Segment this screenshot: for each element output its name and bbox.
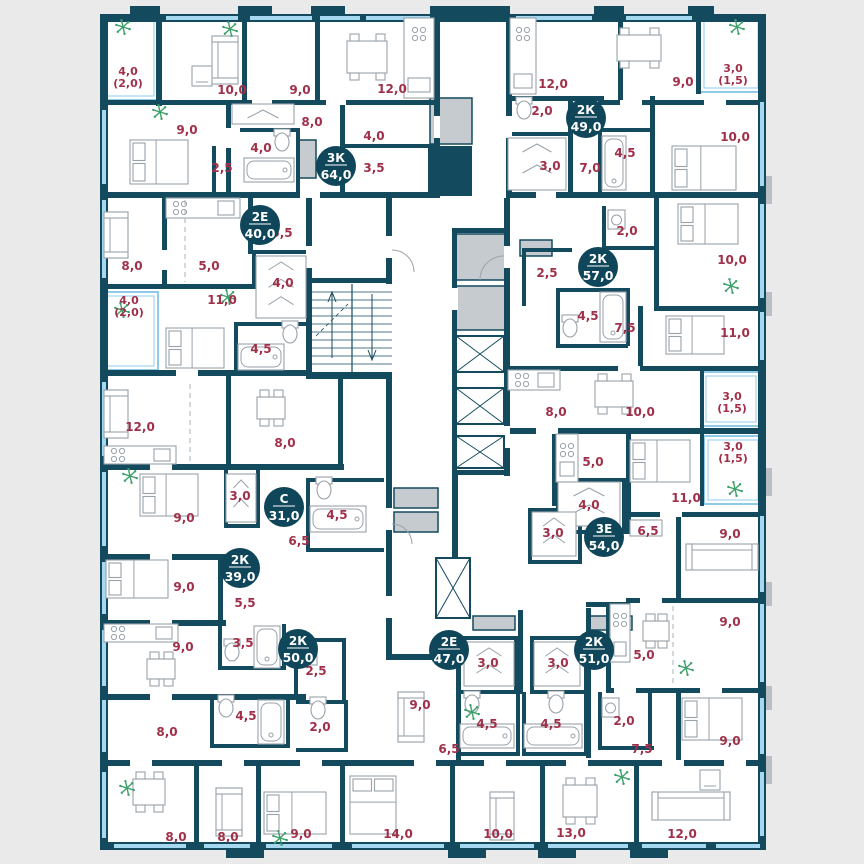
room-area-label: 8,0 — [301, 115, 322, 129]
unit-badge[interactable]: 2К39,0 — [220, 548, 260, 588]
floor-plan: 10,09,012,012,09,09,08,04,04,02,53,52,03… — [0, 0, 864, 864]
room-area-label: 9,0 — [719, 734, 740, 748]
room-area-label: 4,0 — [578, 498, 599, 512]
room-area-label: 4,0 — [250, 141, 271, 155]
room-area-label: 12,0 — [538, 77, 568, 91]
room-area-label: 3,5 — [363, 161, 384, 175]
dining-table-icon — [563, 778, 597, 824]
unit-area-label: 40,0 — [245, 226, 276, 241]
room-area-label: 4,5 — [476, 717, 497, 731]
unit-area-label: 50,0 — [283, 650, 314, 665]
unit-type-label: 2К — [577, 103, 595, 117]
room-area-label: 4,0 — [363, 129, 384, 143]
bathtub-icon — [244, 158, 294, 182]
bed-icon — [140, 474, 198, 516]
room-area-label: 4,5 — [614, 146, 635, 160]
room-area-label: 4,5 — [250, 342, 271, 356]
bed-icon — [666, 316, 724, 354]
room-area-label: 3,0 — [539, 159, 560, 173]
room-area-label: 7,0 — [579, 161, 600, 175]
room-area-label: 2,0 — [616, 224, 637, 238]
bed-icon — [130, 140, 188, 184]
room-area-label: 3,0 — [542, 526, 563, 540]
room-area-label: 2,0 — [531, 104, 552, 118]
balcony-inner-area-label: (2,0) — [113, 77, 143, 90]
unit-area-label: 54,0 — [589, 538, 620, 553]
room-area-label: 4,5 — [235, 709, 256, 723]
toilet-icon — [274, 129, 290, 151]
room-area-label: 14,0 — [383, 827, 413, 841]
sofa-icon — [104, 212, 128, 258]
kitchen-counter-icon — [556, 434, 578, 482]
sofa-icon — [686, 544, 758, 570]
toilet-icon — [310, 697, 326, 719]
bed-icon — [672, 146, 736, 190]
unit-badge[interactable]: 3Е54,0 — [584, 517, 624, 557]
room-area-label: 9,0 — [173, 511, 194, 525]
toilet-icon — [562, 315, 578, 337]
toilet-icon — [282, 321, 298, 343]
unit-type-label: 3К — [327, 151, 345, 165]
room-area-label: 10,0 — [717, 253, 747, 267]
unit-badge[interactable]: 3К64,0 — [316, 146, 356, 186]
room-area-label: 4,5 — [540, 717, 561, 731]
room-area-label: 11,0 — [207, 293, 237, 307]
room-area-label: 8,0 — [545, 405, 566, 419]
room-area-label: 8,0 — [217, 830, 238, 844]
room-area-label: 9,0 — [172, 640, 193, 654]
sofa-icon — [212, 36, 238, 84]
bed-icon — [166, 328, 224, 368]
toilet-icon — [316, 477, 332, 499]
room-area-label: 10,0 — [217, 83, 247, 97]
unit-type-label: 2К — [589, 252, 607, 266]
room-area-label: 12,0 — [667, 827, 697, 841]
room-area-label: 4,5 — [577, 309, 598, 323]
balcony-inner-area-label: (2,0) — [114, 306, 144, 319]
room-area-label: 9,0 — [672, 75, 693, 89]
kitchen-counter-icon — [166, 198, 240, 218]
wardrobe-icon — [232, 104, 294, 124]
unit-type-label: 2Е — [441, 635, 458, 649]
room-area-label: 12,0 — [125, 420, 155, 434]
room-area-label: 3,5 — [232, 636, 253, 650]
toilet-icon — [516, 97, 532, 119]
unit-type-label: 2К — [231, 553, 249, 567]
balcony-inner-area-label: (1,5) — [718, 74, 748, 87]
room-area-label: 8,0 — [165, 830, 186, 844]
balcony-inner-area-label: (1,5) — [718, 452, 748, 465]
room-area-label: 9,0 — [290, 827, 311, 841]
kitchen-counter-icon — [404, 18, 434, 98]
room-area-label: 10,0 — [720, 130, 750, 144]
kitchen-counter-icon — [104, 624, 178, 642]
room-area-label: 5,0 — [198, 259, 219, 273]
room-area-label: 12,0 — [377, 82, 407, 96]
room-area-label: 11,0 — [720, 326, 750, 340]
room-area-label: 10,0 — [625, 405, 655, 419]
room-area-label: 9,0 — [176, 123, 197, 137]
unit-badge[interactable]: 2Е47,0 — [429, 630, 469, 670]
unit-badge[interactable]: 2К51,0 — [574, 630, 614, 670]
room-area-label: 3,0 — [547, 656, 568, 670]
unit-area-label: 31,0 — [269, 508, 300, 523]
room-area-label: 2,5 — [305, 664, 326, 678]
room-area-label: 6,5 — [438, 742, 459, 756]
bathtub-icon — [258, 700, 284, 744]
room-area-label: 9,0 — [173, 580, 194, 594]
room-area-label: 8,0 — [156, 725, 177, 739]
unit-area-label: 49,0 — [571, 119, 602, 134]
kitchen-counter-icon — [508, 370, 560, 390]
unit-area-label: 51,0 — [579, 651, 610, 666]
unit-type-label: 2К — [585, 635, 603, 649]
unit-badge[interactable]: 2К49,0 — [566, 98, 606, 138]
room-area-label: 10,0 — [483, 827, 513, 841]
room-area-label: 3,0 — [229, 489, 250, 503]
toilet-icon — [218, 695, 234, 717]
unit-area-label: 57,0 — [583, 268, 614, 283]
unit-type-label: С — [280, 492, 289, 506]
balcony-inner-area-label: (1,5) — [717, 402, 747, 415]
unit-type-label: 2К — [289, 634, 307, 648]
room-area-label: 7,5 — [631, 742, 652, 756]
floor-plan-page: 10,09,012,012,09,09,08,04,04,02,53,52,03… — [0, 0, 864, 864]
sofa-icon — [216, 788, 242, 836]
unit-badge[interactable]: 2К57,0 — [578, 247, 618, 287]
toilet-icon — [548, 691, 564, 713]
room-area-label: 9,0 — [719, 527, 740, 541]
room-area-label: 13,0 — [556, 826, 586, 840]
sofa-icon — [652, 792, 730, 820]
bed-icon — [630, 440, 690, 482]
room-area-label: 9,0 — [719, 615, 740, 629]
bed-icon — [350, 776, 396, 834]
room-area-label: 5,5 — [234, 596, 255, 610]
room-area-label: 8,0 — [274, 436, 295, 450]
unit-badge[interactable]: С31,0 — [264, 487, 304, 527]
stairs-icon — [312, 284, 392, 372]
bed-icon — [678, 204, 738, 244]
room-area-label: 5,0 — [633, 648, 654, 662]
room-area-label: 6,5 — [637, 524, 658, 538]
room-area-label: 2,5 — [211, 161, 232, 175]
bathtub-icon — [254, 626, 280, 668]
room-area-label: 2,5 — [536, 266, 557, 280]
room-area-label: 6,5 — [288, 534, 309, 548]
unit-type-label: 3Е — [596, 522, 613, 536]
armchair-icon — [192, 66, 212, 86]
bathtub-icon — [602, 136, 626, 190]
room-area-label: 2,0 — [613, 714, 634, 728]
room-area-label: 9,0 — [409, 698, 430, 712]
room-area-label: 5,0 — [582, 455, 603, 469]
unit-area-label: 39,0 — [225, 569, 256, 584]
room-area-label: 11,0 — [671, 491, 701, 505]
room-area-label: 2,0 — [309, 720, 330, 734]
unit-type-label: 2Е — [252, 210, 269, 224]
room-area-label: 4,5 — [326, 508, 347, 522]
room-area-label: 7,5 — [614, 321, 635, 335]
bed-icon — [106, 560, 168, 598]
armchair-icon — [700, 770, 720, 790]
unit-badge[interactable]: 2К50,0 — [278, 629, 318, 669]
unit-area-label: 47,0 — [434, 651, 465, 666]
room-area-label: 3,0 — [477, 656, 498, 670]
room-area-label: 9,0 — [289, 83, 310, 97]
room-area-label: 4,0 — [272, 276, 293, 290]
room-area-label: 8,0 — [121, 259, 142, 273]
unit-area-label: 64,0 — [321, 167, 352, 182]
kitchen-counter-icon — [104, 446, 176, 464]
dining-table-icon — [347, 34, 387, 80]
kitchen-counter-icon — [510, 18, 536, 94]
unit-badge[interactable]: 2Е40,0 — [240, 205, 280, 245]
